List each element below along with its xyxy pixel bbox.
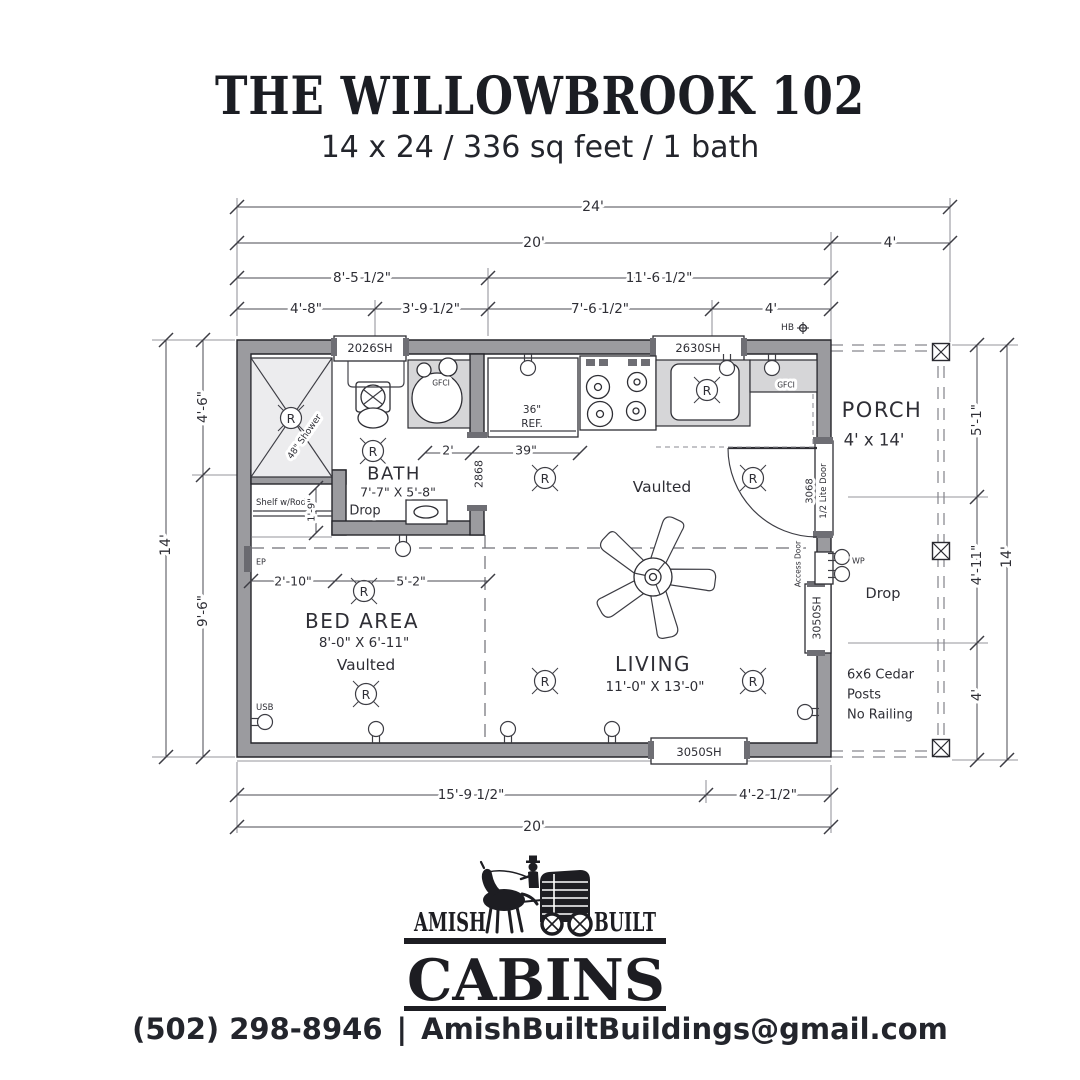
living-size: 11'-0" X 13'-0" bbox=[606, 679, 705, 695]
door-3068-label: 3068 bbox=[805, 478, 816, 503]
contact-email: AmishBuiltBuildings@gmail.com bbox=[421, 1012, 948, 1046]
electrical-panel: EP bbox=[244, 546, 266, 572]
contact-divider: | bbox=[397, 1012, 408, 1046]
dim-porch-width: 4' bbox=[884, 235, 897, 251]
wall-bath-east-upper bbox=[470, 354, 484, 436]
dim-3-9: 3'-9 1/2" bbox=[402, 301, 460, 317]
logo-divider-top bbox=[404, 938, 666, 944]
dim-7-6: 7'-6 1/2" bbox=[571, 301, 629, 317]
gfci-label-kitchen: GFCI bbox=[777, 381, 795, 390]
page-title: THE WILLOWBROOK 102 bbox=[86, 66, 993, 127]
dim-top-right-span: 11'-6 1/2" bbox=[626, 270, 693, 286]
window-3050sh-bottom: 3050SH bbox=[648, 738, 750, 764]
dim-overall-width: 24' bbox=[582, 199, 604, 215]
wall-bath-east-lower bbox=[470, 509, 484, 535]
porch-posts-note-3: No Railing bbox=[847, 708, 913, 723]
bath-label: BATH bbox=[367, 464, 421, 485]
logo-built: BUILT bbox=[594, 908, 656, 938]
dim-cabin-height: 14' bbox=[158, 534, 174, 556]
contact-line: (502) 298-8946|AmishBuiltBuildings@gmail… bbox=[0, 1012, 1080, 1046]
window-3050sh-side: 3050SH bbox=[805, 581, 831, 656]
access-door-label: Access Door bbox=[794, 540, 803, 587]
dim-4-top: 4' bbox=[765, 301, 777, 317]
shelf-rod-label: Shelf w/Rod bbox=[256, 498, 306, 508]
dim-39in: 39" bbox=[515, 443, 537, 458]
ep-label: EP bbox=[256, 558, 266, 567]
window-2630sh: 2630SH bbox=[650, 336, 747, 361]
bed-area-label: BED AREA bbox=[305, 609, 419, 633]
gfci-label-bath: GFCI bbox=[432, 379, 450, 388]
ref-width-label: 36" bbox=[523, 404, 541, 416]
dim-9-6: 9'-6" bbox=[195, 595, 211, 627]
stove bbox=[580, 356, 656, 430]
toilet bbox=[356, 382, 390, 428]
dim-4-8: 4'-8" bbox=[290, 301, 322, 317]
closet: Shelf w/Rod 1'-9" bbox=[251, 481, 332, 540]
bath-size: 7'-7" X 5'-8" bbox=[360, 485, 436, 500]
ceiling-fan-icon bbox=[595, 515, 716, 640]
wp-label: WP bbox=[852, 557, 865, 566]
porch-drop-note: Drop bbox=[866, 586, 901, 602]
porch: PORCH 4' x 14' Drop 6x6 Cedar Posts No R… bbox=[831, 344, 950, 758]
door-3068-type-label: 1/2 Lite Door bbox=[819, 463, 829, 519]
horse-buggy-icon bbox=[481, 856, 591, 936]
bath-vanity: GFCI bbox=[408, 358, 470, 428]
door-2868-label: 2868 bbox=[473, 460, 486, 488]
page-subtitle: 14 x 24 / 336 sq feet / 1 bath bbox=[0, 130, 1080, 165]
dim-20-bottom: 20' bbox=[523, 819, 545, 835]
window-3050sh-bottom-label: 3050SH bbox=[676, 745, 721, 759]
porch-label: PORCH bbox=[842, 398, 923, 422]
porch-posts-note-1: 6x6 Cedar bbox=[847, 668, 915, 683]
contact-phone: (502) 298-8946 bbox=[132, 1012, 382, 1046]
hose-bib: HB bbox=[781, 322, 809, 334]
bed-area-size: 8'-0" X 6'-11" bbox=[319, 635, 409, 651]
window-2026sh: 2026SH bbox=[331, 336, 409, 361]
dim-15-9: 15'-9 1/2" bbox=[438, 787, 505, 803]
dim-2ft: 2' bbox=[442, 443, 453, 458]
dim-4-porch: 4' bbox=[969, 689, 985, 701]
dim-2-10: 2'-10" bbox=[274, 574, 312, 589]
bath-door-2868: 2868 bbox=[467, 432, 487, 511]
porch-size: 4' x 14' bbox=[844, 431, 905, 450]
usb-label: USB bbox=[256, 703, 274, 713]
dim-top-left-span: 8'-5 1/2" bbox=[333, 270, 391, 286]
amish-built-cabins-logo: AMISH BUILT CABINS bbox=[402, 852, 682, 1017]
dim-5-1: 5'-1" bbox=[969, 404, 985, 436]
bath-drop-note: Drop bbox=[349, 504, 380, 519]
dim-4-11: 4'-11" bbox=[969, 545, 985, 586]
living-label: LIVING bbox=[615, 652, 691, 676]
dim-1-9: 1'-9" bbox=[307, 498, 318, 522]
dim-4-6: 4'-6" bbox=[195, 391, 211, 423]
dim-porch-height: 14' bbox=[999, 546, 1015, 568]
driver-icon bbox=[521, 856, 540, 889]
logo-cabins: CABINS bbox=[407, 947, 665, 1014]
bath-shelf-fixture bbox=[406, 500, 447, 524]
dim-cabin-width: 20' bbox=[523, 235, 545, 251]
kitchen-vaulted-note: Vaulted bbox=[633, 478, 691, 496]
bed-area-vaulted-note: Vaulted bbox=[337, 656, 395, 674]
window-2026sh-label: 2026SH bbox=[347, 341, 392, 355]
floor-plan: R bbox=[0, 175, 1080, 865]
page: THE WILLOWBROOK 102 14 x 24 / 336 sq fee… bbox=[0, 0, 1080, 1080]
hb-label: HB bbox=[781, 323, 794, 333]
window-2630sh-label: 2630SH bbox=[675, 341, 720, 355]
logo-amish: AMISH bbox=[413, 908, 486, 938]
ref-label: REF. bbox=[521, 418, 543, 430]
dim-4-2: 4'-2 1/2" bbox=[739, 787, 797, 803]
porch-posts-note-2: Posts bbox=[847, 688, 881, 703]
window-3050sh-side-label: 3050SH bbox=[811, 596, 824, 639]
dim-5-2: 5'-2" bbox=[396, 574, 426, 589]
